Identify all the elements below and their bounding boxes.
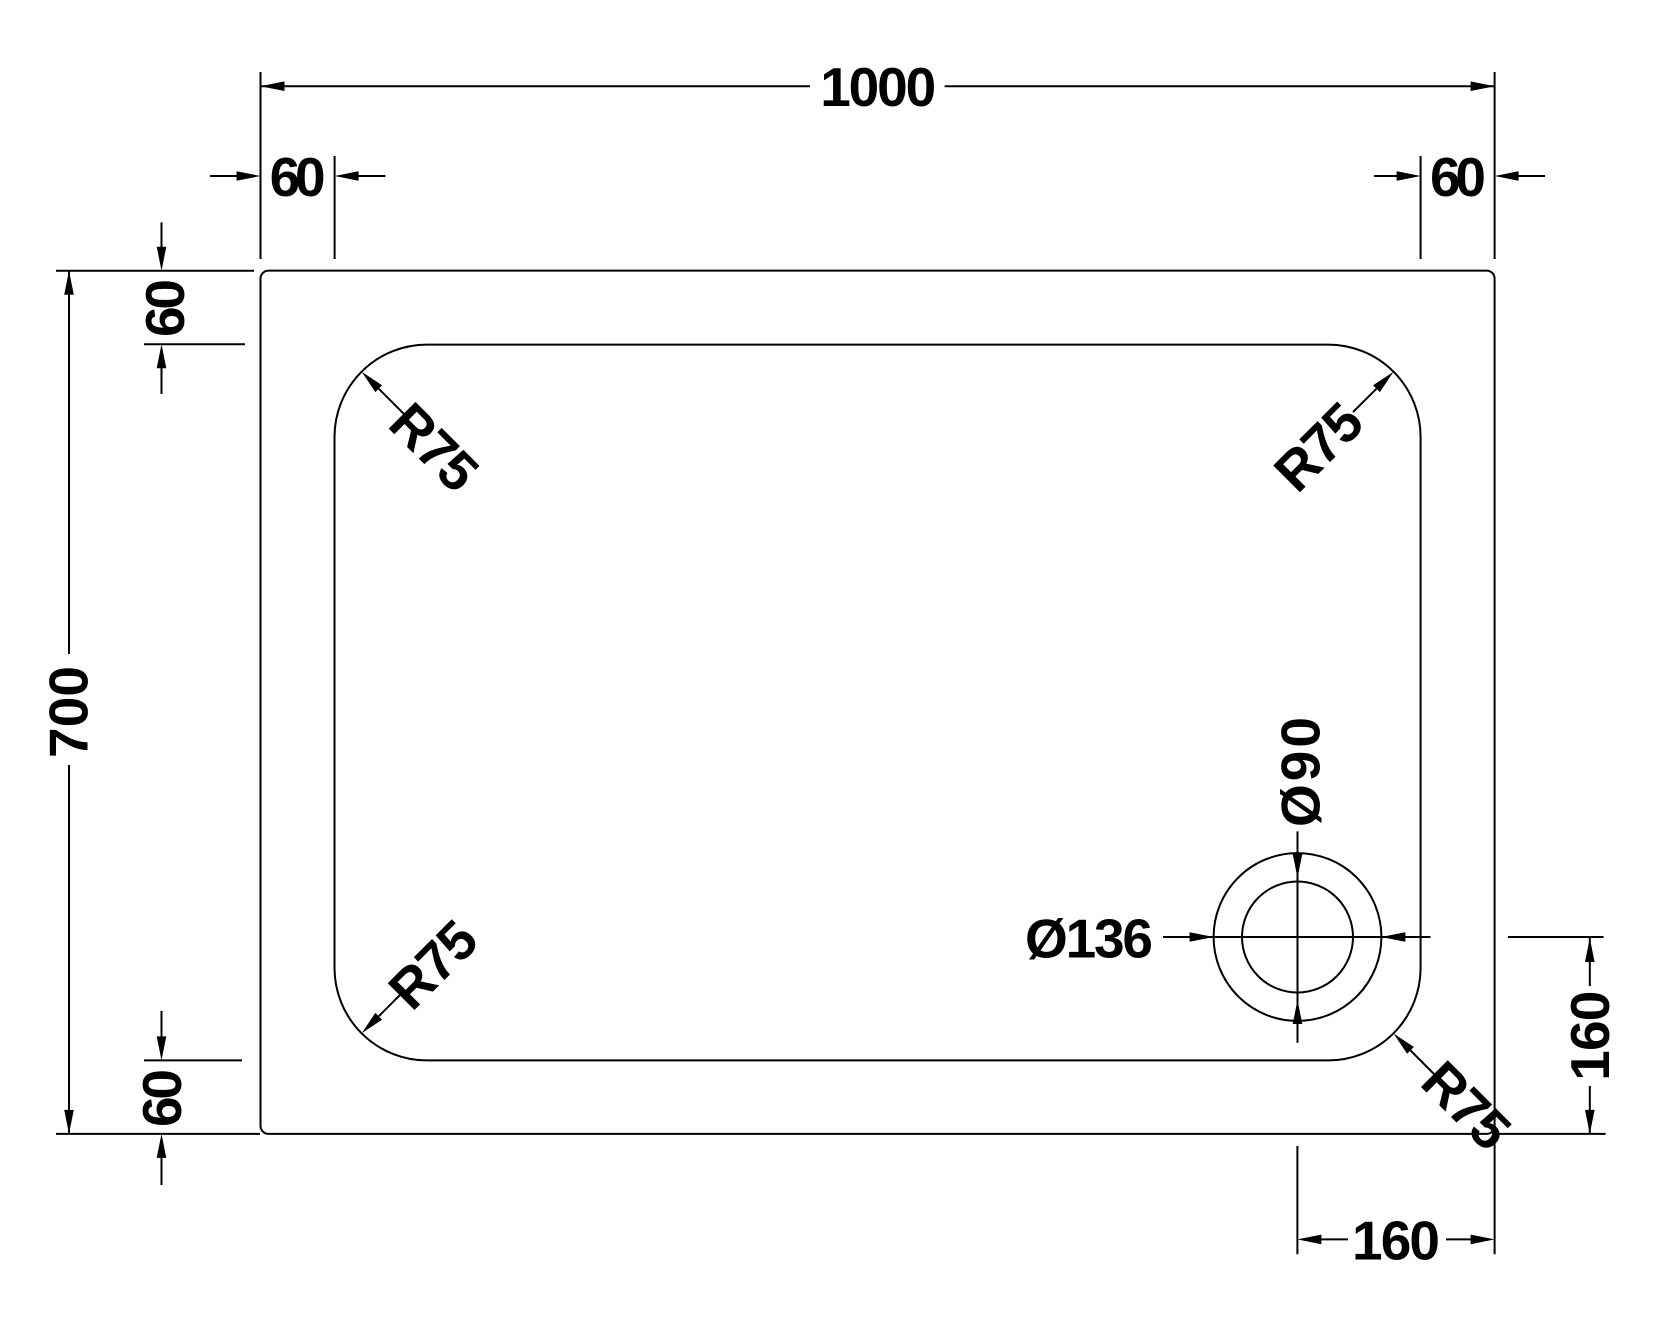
svg-text:Ø136: Ø136 [1025, 907, 1153, 969]
svg-text:60: 60 [131, 1069, 193, 1127]
svg-text:60: 60 [134, 279, 196, 337]
svg-text:160: 160 [1559, 991, 1621, 1081]
svg-text:700: 700 [38, 666, 100, 758]
svg-text:1000: 1000 [820, 56, 936, 118]
svg-text:160: 160 [1352, 1209, 1440, 1271]
svg-text:Ø90: Ø90 [1270, 717, 1332, 827]
svg-text:60: 60 [1430, 146, 1486, 208]
svg-text:60: 60 [270, 146, 326, 208]
